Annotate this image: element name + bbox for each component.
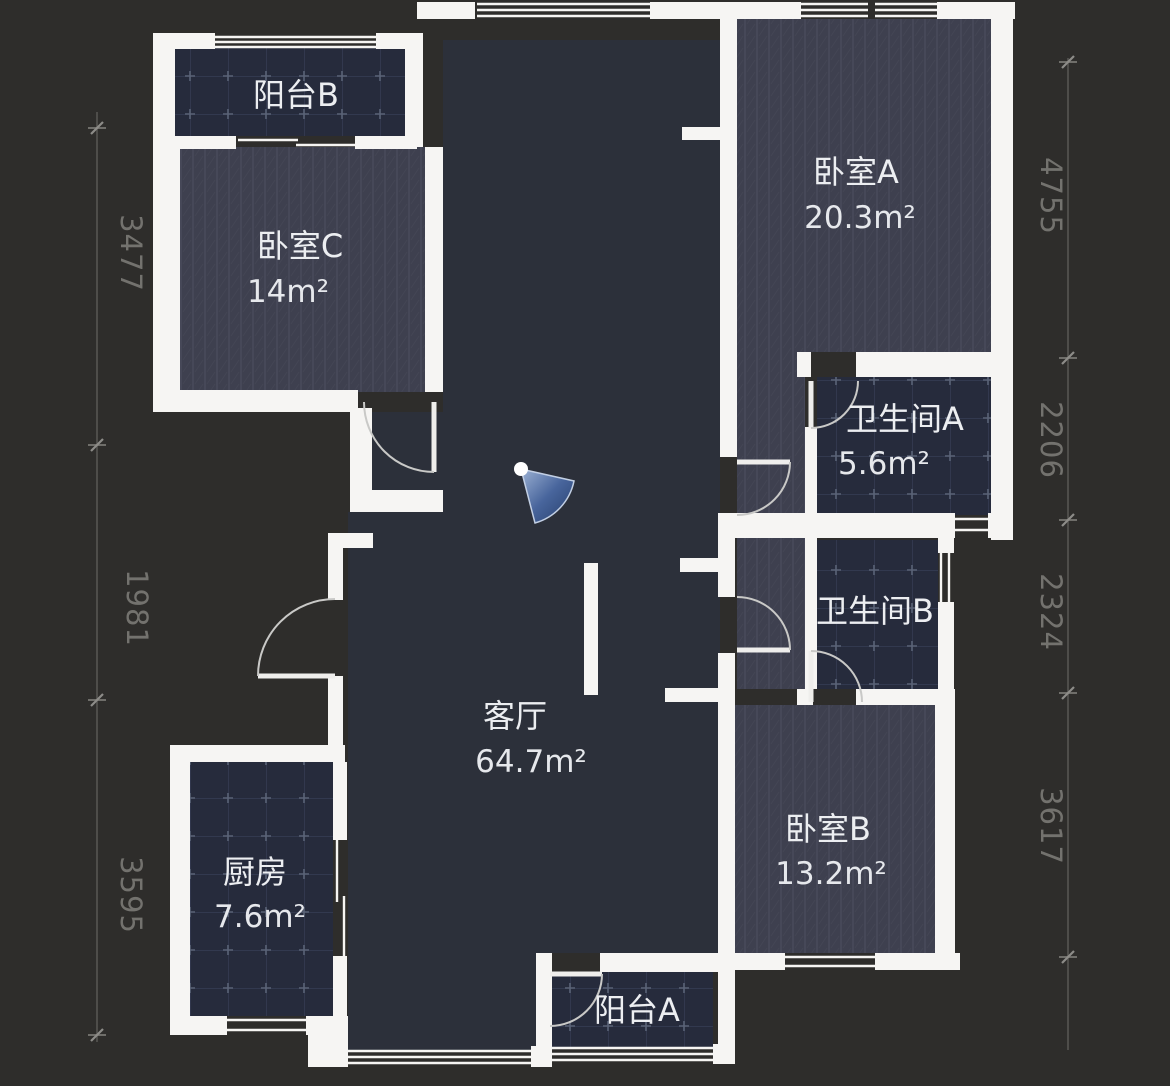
wall-segment (650, 2, 693, 19)
area-bedroom-b: 13.2m² (775, 856, 887, 892)
wall-segment (170, 745, 345, 762)
wall-segment (308, 1016, 348, 1067)
wall-segment (856, 352, 991, 377)
wall-segment (153, 390, 358, 412)
wall-segment (718, 538, 735, 597)
wall-segment (153, 33, 175, 147)
wall-segment (680, 558, 718, 572)
wall-segment (600, 953, 733, 972)
wall-segment (797, 352, 811, 377)
wall-segment (713, 1044, 733, 1064)
floorplan-svg: 阳台B 卧室C 14m² 卧室A 20.3m² 卫生间A 5.6m² 卫生间B … (0, 0, 1170, 1086)
wall-segment (405, 33, 423, 147)
dim-right-1: 2206 (1034, 401, 1068, 479)
room-floor-bedroom-a-nook (737, 352, 805, 515)
label-bedroom-b: 卧室B (785, 810, 871, 848)
room-floor-bedroom-c (180, 147, 425, 392)
wall-segment (682, 127, 720, 140)
label-bathroom-a: 卫生间A (846, 400, 964, 438)
wall-segment (355, 136, 417, 149)
room-floor-hallway (737, 527, 805, 689)
label-bedroom-c: 卧室C (257, 227, 343, 265)
wall-segment (175, 33, 215, 49)
dim-left-2: 3595 (114, 856, 148, 934)
label-living-room: 客厅 (483, 697, 547, 735)
wall-segment (333, 762, 347, 840)
wall-segment (718, 689, 735, 1064)
wall-segment (693, 2, 801, 19)
wall-segment (376, 33, 408, 49)
wall-segment (718, 513, 955, 538)
wall-segment (328, 533, 373, 548)
wall-segment (935, 700, 955, 970)
area-bedroom-c: 14m² (247, 274, 329, 310)
wall-segment (153, 147, 180, 412)
window-gap (785, 953, 875, 970)
wall-segment (584, 563, 598, 695)
dim-right-3: 3617 (1034, 787, 1068, 865)
label-kitchen: 厨房 (223, 853, 287, 891)
wall-segment (991, 2, 1013, 540)
wall-segment (352, 490, 443, 512)
label-bathroom-b: 卫生间B (816, 592, 934, 630)
dim-right-0: 4755 (1034, 157, 1068, 235)
area-kitchen: 7.6m² (214, 899, 306, 935)
wall-segment (531, 1046, 552, 1067)
label-balcony-a: 阳台A (594, 991, 680, 1029)
wall-segment (425, 147, 443, 392)
wall-segment (988, 513, 1013, 538)
wall-segment (805, 427, 817, 515)
area-bedroom-a: 20.3m² (804, 200, 916, 236)
wall-segment (720, 15, 737, 457)
dim-right-2: 2324 (1034, 573, 1068, 651)
wall-segment (417, 2, 475, 19)
wall-segment (170, 762, 190, 1035)
wall-segment (536, 953, 550, 972)
area-bathroom-a: 5.6m² (838, 446, 930, 482)
label-balcony-b: 阳台B (253, 76, 339, 114)
floorplan-canvas: 阳台B 卧室C 14m² 卧室A 20.3m² 卫生间A 5.6m² 卫生间B … (0, 0, 1170, 1086)
wall-segment (333, 956, 347, 1016)
label-bedroom-a: 卧室A (813, 153, 899, 191)
wall-segment (665, 688, 720, 702)
dim-left-0: 3477 (114, 214, 148, 292)
area-living-room: 64.7m² (475, 744, 587, 780)
dim-left-1: 1981 (120, 569, 154, 647)
wall-segment (170, 1016, 227, 1035)
